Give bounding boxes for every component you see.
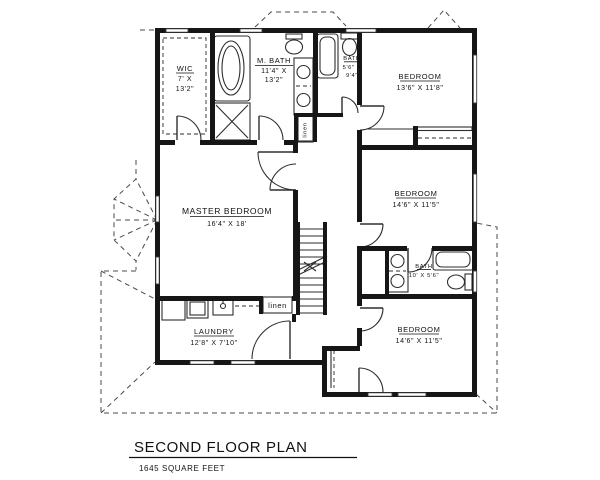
jack-bath-tub-icon xyxy=(433,249,473,270)
wall-master-east-stub xyxy=(293,144,298,153)
label-linen-upper: linen xyxy=(303,122,309,137)
plan-title: SECOND FLOOR PLAN xyxy=(134,439,308,456)
room-dim-hall-bath-2: 9'4" xyxy=(346,73,358,79)
wall-wic-divider xyxy=(210,33,215,140)
wall-mbath-east xyxy=(313,33,318,117)
wall-bath-north-a xyxy=(357,246,407,251)
wall-exterior-top xyxy=(155,28,477,33)
wall-hall-bottom xyxy=(322,346,360,351)
labels-layer: WIC 7' X 13'2" M. BATH 11'4" X 13'2" BAT… xyxy=(129,56,443,473)
master-bath-door xyxy=(259,116,283,140)
stairs-stringer-right xyxy=(323,222,327,315)
stairs-stringer-left xyxy=(296,222,300,315)
wall-bumpout-bottom xyxy=(322,392,357,397)
laundry-sink-icon xyxy=(213,299,233,315)
room-label-bedroom-bottom: BEDROOM xyxy=(398,325,441,334)
bedroom-top-closet-doors xyxy=(417,127,472,131)
wall-laundry-east-stub xyxy=(292,314,296,322)
wall-master-north-a xyxy=(155,140,175,145)
room-dim-wic-2: 13'2" xyxy=(176,86,195,93)
wall-laundry-north xyxy=(155,296,263,301)
room-label-master-bedroom: MASTER BEDROOM xyxy=(182,206,272,216)
floor-plan-drawing: WIC 7' X 13'2" M. BATH 11'4" X 13'2" BAT… xyxy=(0,0,600,480)
wall-linen-lower-west xyxy=(259,296,263,314)
window-laundry-b xyxy=(231,361,255,364)
room-dim-master-bedroom: 16'4" X 18' xyxy=(207,221,247,228)
staircase xyxy=(296,229,327,313)
window-laundry-a xyxy=(190,361,214,364)
window-right-bath xyxy=(473,271,476,292)
window-top-wic xyxy=(166,29,188,32)
window-left-master-a xyxy=(156,196,159,222)
room-dim-bedroom-top: 13'6" X 11'8" xyxy=(397,85,444,92)
room-dim-bath-jack: 10' X 5'6" xyxy=(409,273,439,279)
window-right-bedroom-top xyxy=(473,55,476,103)
wall-bath-vanity-west xyxy=(385,248,389,294)
room-dim-bedroom-mid: 14'6" X 11'5" xyxy=(393,202,440,209)
dryer-icon xyxy=(187,299,208,318)
window-bedroom-bottom-b xyxy=(398,393,426,396)
bumpout-closet-door xyxy=(359,368,383,392)
wall-closet-divider xyxy=(413,126,418,146)
roof-bay-top xyxy=(255,12,346,27)
wall-bedrooms-west-d xyxy=(357,328,362,346)
wall-bath-north-b xyxy=(432,246,472,251)
roof-bay-left xyxy=(114,160,136,270)
bedroom-bottom-door xyxy=(360,308,383,331)
roof-hip-bottom-right xyxy=(476,394,497,413)
laundry-door xyxy=(252,321,290,359)
bedroom-top-door xyxy=(360,106,384,130)
hall-bath-tub-icon xyxy=(317,34,338,78)
wall-bedroom-divider xyxy=(357,145,477,150)
roof-bay-left-fan xyxy=(114,179,157,261)
window-bedroom-bottom-a xyxy=(368,393,392,396)
room-label-bedroom-mid: BEDROOM xyxy=(395,189,438,198)
jack-bath-toilet-icon xyxy=(448,274,473,290)
room-label-hall-bath: BATH xyxy=(343,56,360,62)
window-top-mbath xyxy=(240,29,262,32)
master-bath-toilet-icon xyxy=(286,34,303,54)
window-left-master-b xyxy=(156,257,159,284)
hall-bath-door xyxy=(342,97,358,113)
room-label-bedroom-top: BEDROOM xyxy=(399,72,442,81)
wall-master-north-b xyxy=(200,140,257,145)
shower-icon xyxy=(214,103,250,140)
floor-plan-page: WIC 7' X 13'2" M. BATH 11'4" X 13'2" BAT… xyxy=(0,0,600,480)
room-dim-bedroom-bottom: 14'6" X 11'5" xyxy=(396,338,443,345)
room-dim-hall-bath-1: 5'6" X xyxy=(343,65,362,71)
label-linen-lower: linen xyxy=(268,301,287,310)
room-dim-wic-1: 7' X xyxy=(178,76,192,83)
room-label-wic: WIC xyxy=(177,64,193,73)
roof-hip-bottom-left xyxy=(101,362,155,413)
window-top-bath xyxy=(346,29,376,32)
room-label-master-bath: M. BATH xyxy=(257,56,291,65)
master-bedroom-door xyxy=(258,152,296,190)
room-dim-master-bath-2: 13'2" xyxy=(265,77,284,84)
garden-tub-icon xyxy=(214,36,250,101)
room-dim-master-bath-1: 11'4" X xyxy=(261,68,287,75)
wall-bumpout-left xyxy=(322,346,327,397)
wic-door xyxy=(177,116,201,140)
jack-bath-vanity-icon xyxy=(387,250,408,292)
wall-bath-south xyxy=(357,294,477,299)
roof-hip-top-left xyxy=(101,271,155,299)
wall-bedrooms-west-b xyxy=(357,130,362,222)
roof-outline-dashed xyxy=(101,10,497,413)
plan-area: 1645 SQUARE FEET xyxy=(139,464,225,473)
hall-bath-toilet-icon xyxy=(341,33,358,56)
bedroom-mid-door xyxy=(360,224,383,247)
wall-linen-east xyxy=(313,115,317,142)
washer-icon xyxy=(162,299,185,320)
room-dim-laundry: 12'8" X 7'10" xyxy=(190,340,237,347)
wall-linen-west xyxy=(294,115,298,142)
wall-vanity-sill xyxy=(294,113,343,117)
room-label-laundry: LAUNDRY xyxy=(194,327,234,336)
window-right-bedroom-mid xyxy=(473,174,476,222)
roof-gable-top-right xyxy=(428,10,460,28)
master-bath-vanity-icon xyxy=(294,58,313,115)
